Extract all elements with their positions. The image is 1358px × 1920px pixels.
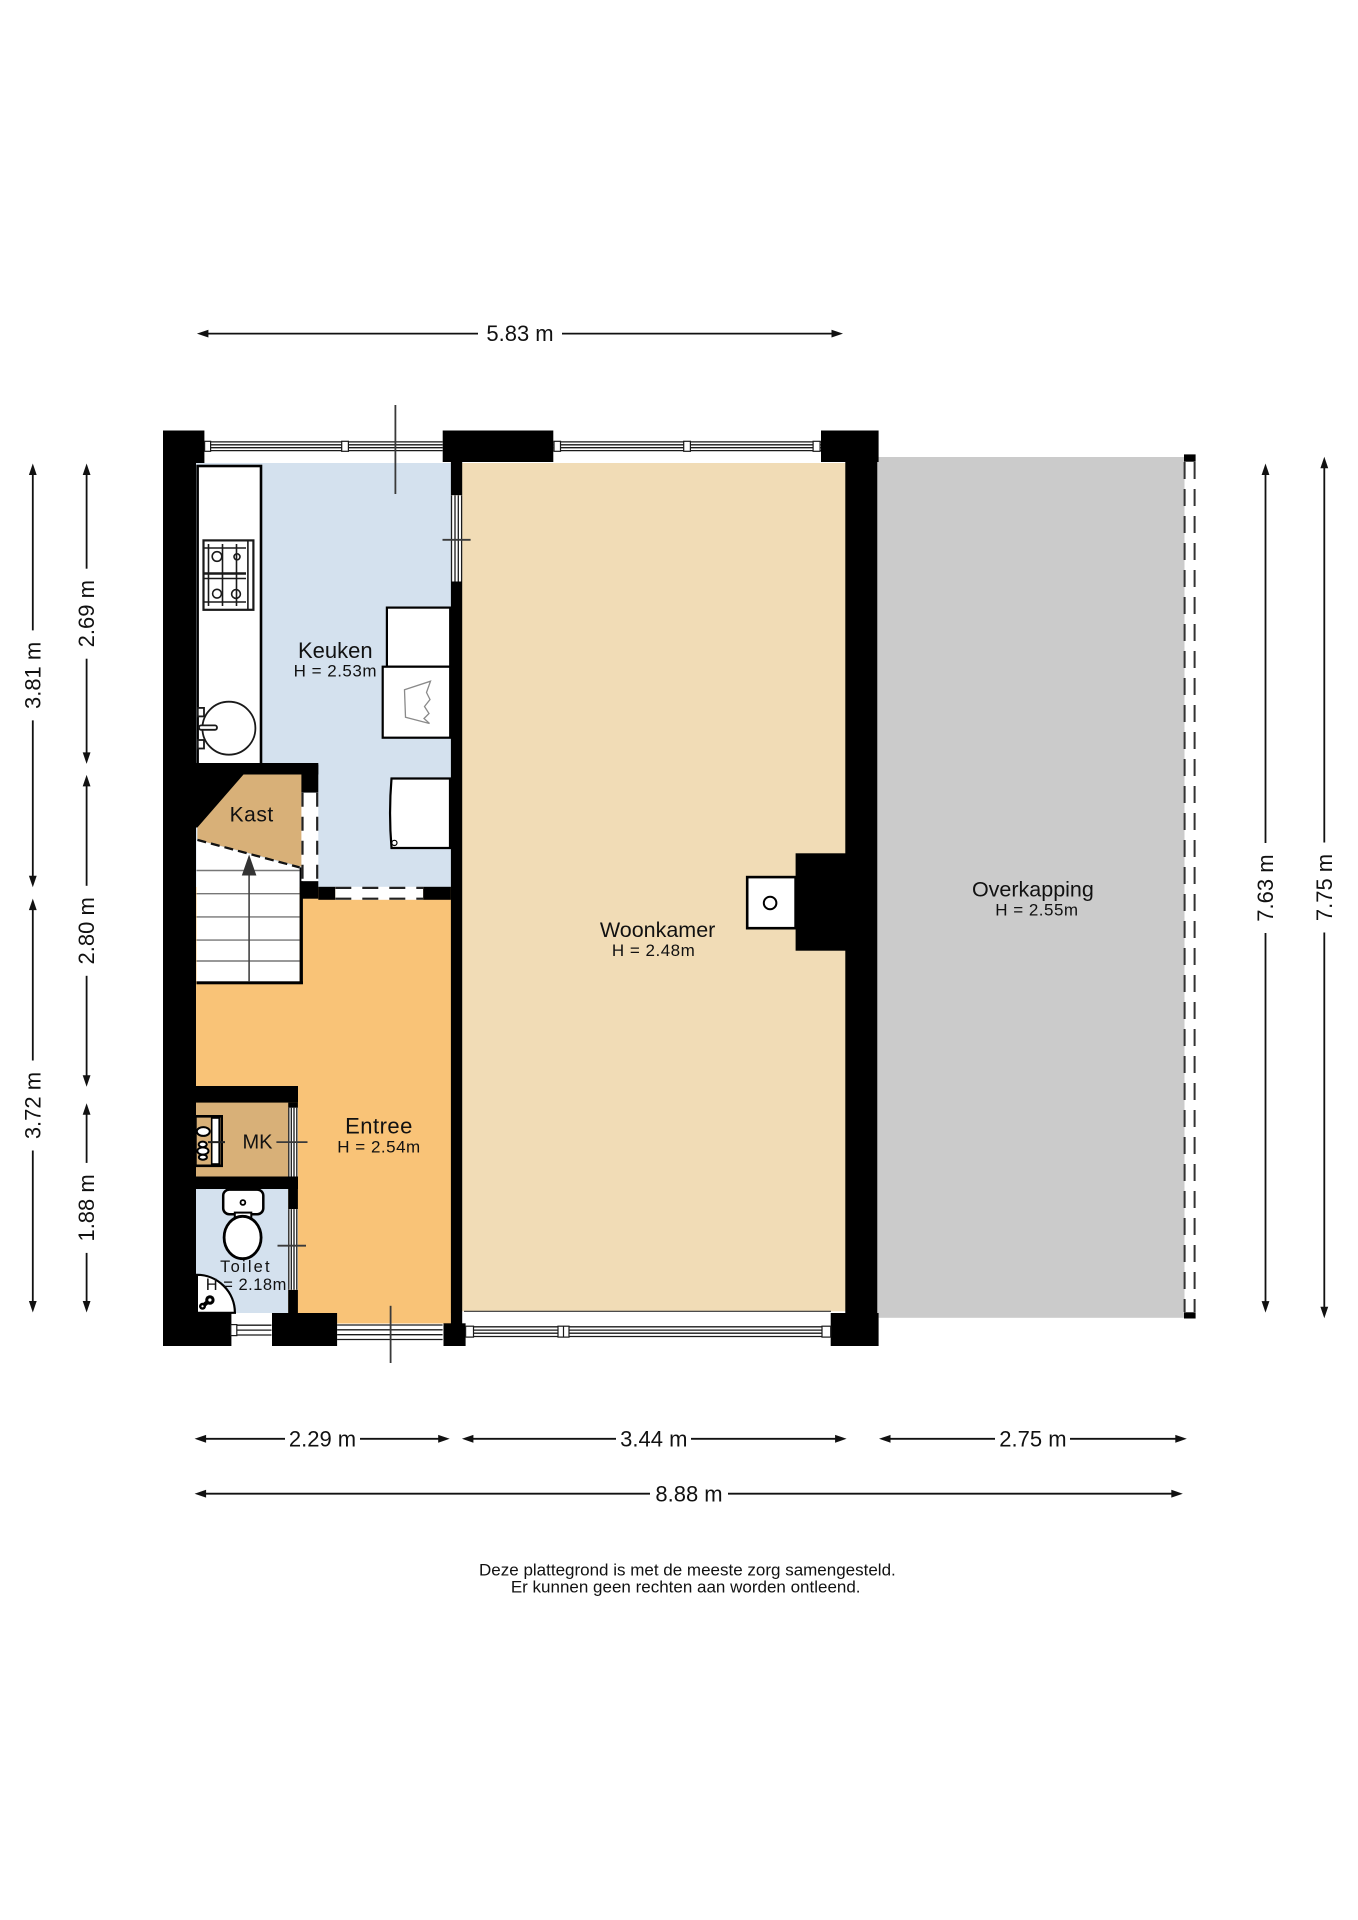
svg-text:Keuken: Keuken [298,638,373,663]
svg-text:Toilet: Toilet [220,1258,272,1276]
svg-text:5.83 m: 5.83 m [486,321,553,346]
svg-text:7.63 m: 7.63 m [1253,854,1278,921]
svg-text:2.69 m: 2.69 m [74,580,99,647]
svg-text:1.88 m: 1.88 m [74,1174,99,1241]
svg-text:8.88 m: 8.88 m [655,1481,722,1506]
svg-text:Kast: Kast [230,803,274,826]
svg-text:3.44 m: 3.44 m [620,1426,687,1451]
svg-text:Overkapping: Overkapping [972,878,1094,902]
svg-text:Er kunnen geen rechten aan wor: Er kunnen geen rechten aan worden ontlee… [511,1578,861,1597]
svg-text:MK: MK [243,1132,274,1154]
svg-text:Entree: Entree [345,1114,413,1139]
svg-text:H = 2.48m: H = 2.48m [612,941,695,960]
svg-text:2.80 m: 2.80 m [74,897,99,964]
svg-text:H = 2.18m: H = 2.18m [206,1276,287,1294]
svg-text:7.75 m: 7.75 m [1312,854,1337,921]
svg-text:H = 2.55m: H = 2.55m [995,901,1078,920]
svg-text:3.72 m: 3.72 m [20,1072,45,1139]
svg-text:H = 2.53m: H = 2.53m [294,662,377,681]
svg-text:2.75 m: 2.75 m [999,1426,1066,1451]
svg-text:H = 2.54m: H = 2.54m [337,1138,420,1157]
svg-text:3.81 m: 3.81 m [20,642,45,709]
svg-text:2.29 m: 2.29 m [289,1426,356,1451]
svg-text:Woonkamer: Woonkamer [600,918,716,942]
